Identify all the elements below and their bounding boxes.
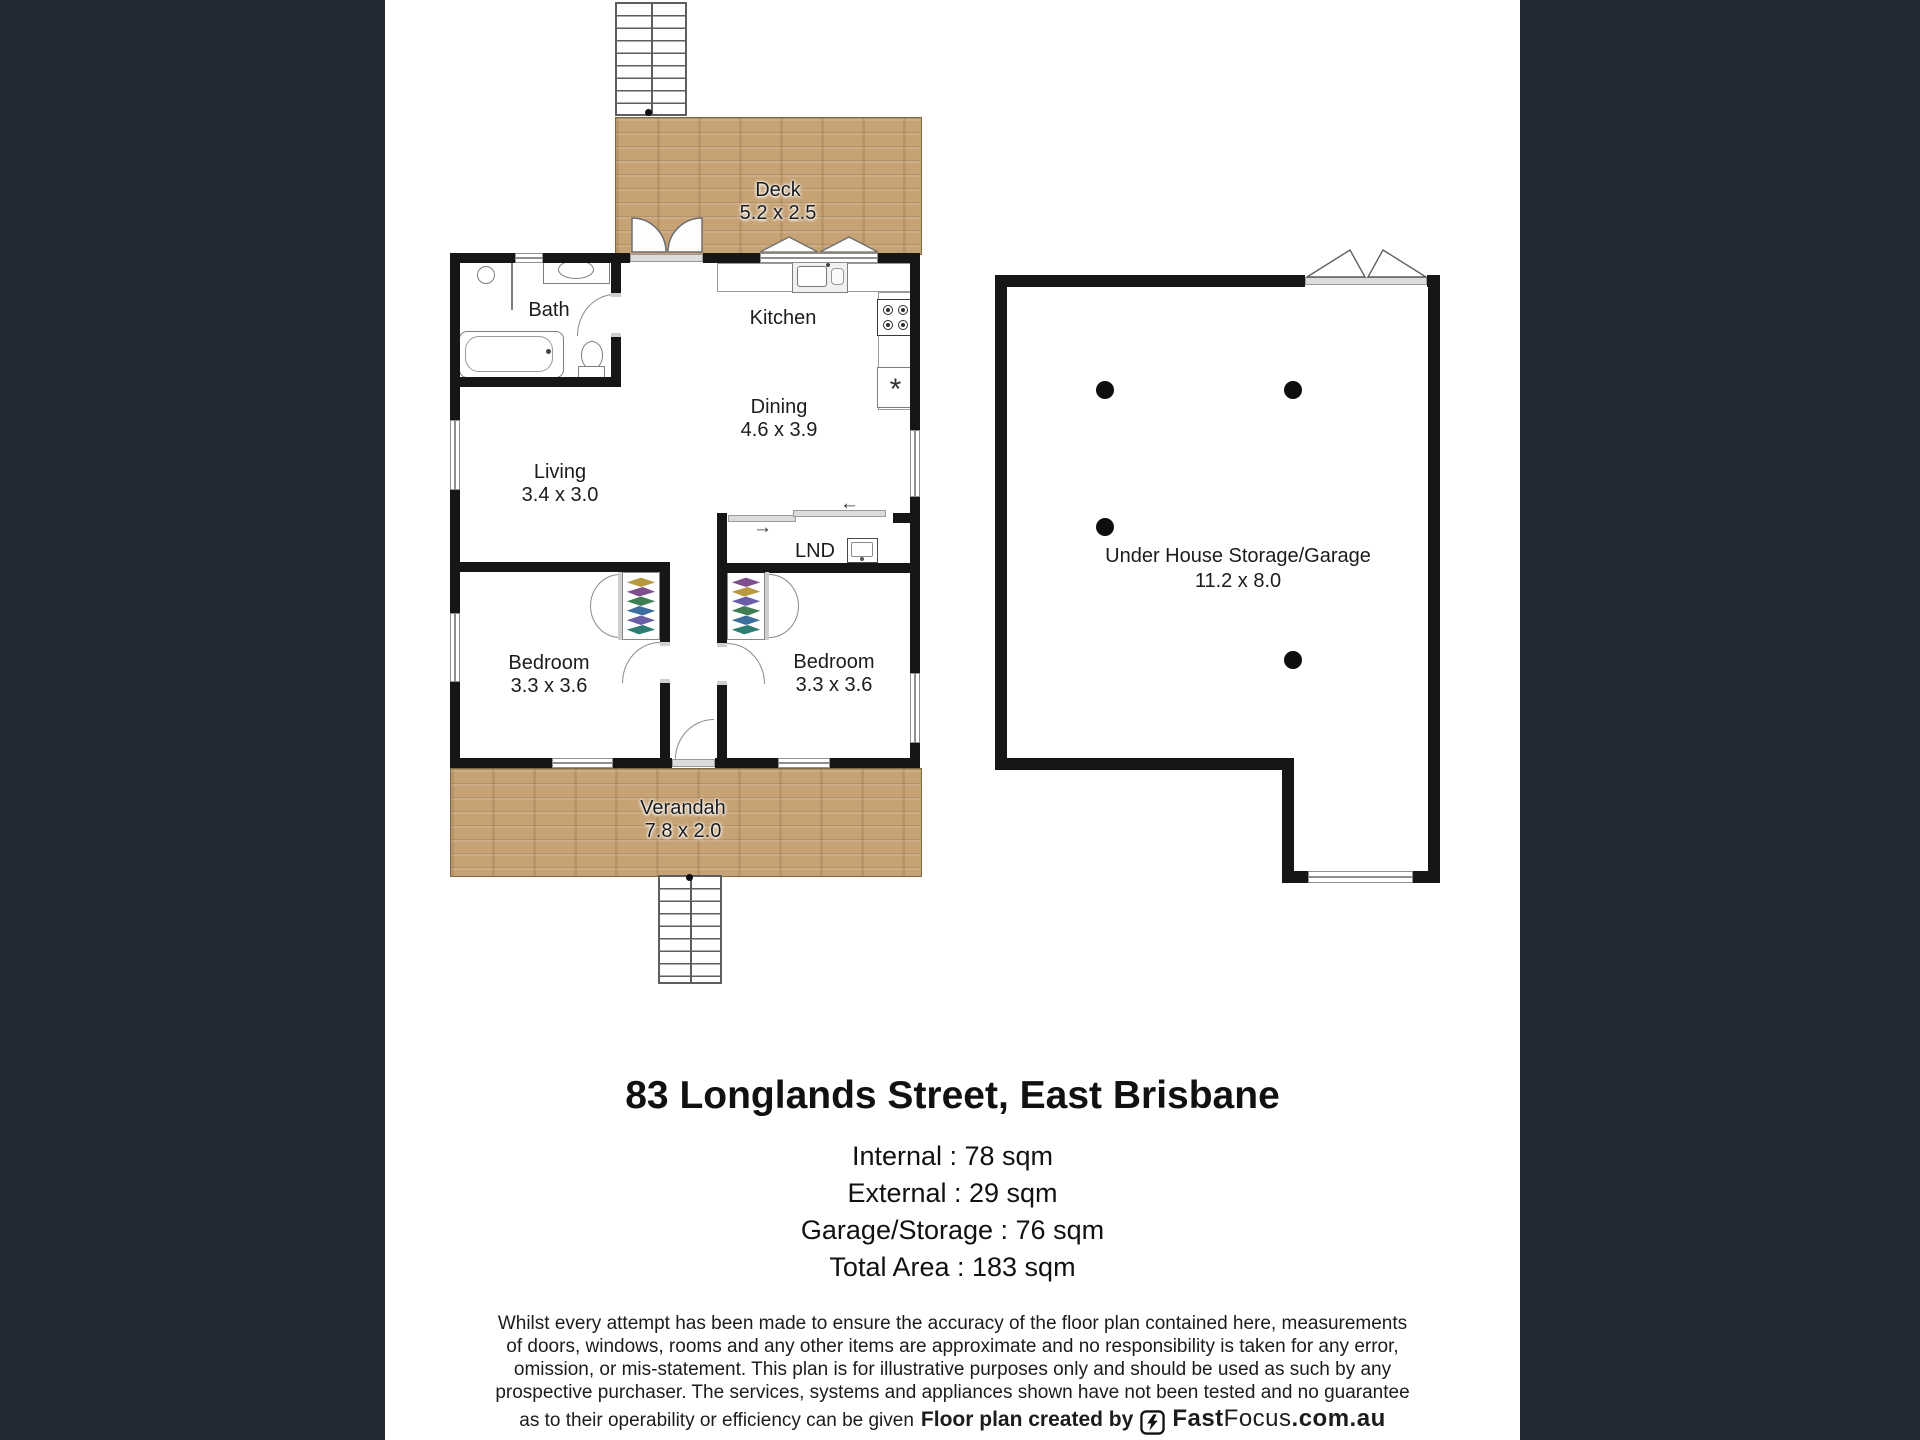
column-dot — [1284, 381, 1302, 399]
window — [910, 430, 920, 497]
door-jamb — [717, 643, 727, 647]
disclaimer-line: omission, or mis-statement. This plan is… — [385, 1358, 1520, 1381]
column-dot — [1096, 381, 1114, 399]
garage-wall-segment — [1294, 871, 1308, 883]
garage-wall-segment — [1413, 871, 1428, 883]
wall-segment — [910, 253, 920, 430]
room-label-bedroom1: Bedroom3.3 x 3.6 — [479, 652, 619, 698]
wall-segment — [910, 497, 920, 673]
area-line: External : 29 sqm — [385, 1175, 1520, 1212]
disclaimer-line: of doors, windows, rooms and any other i… — [385, 1335, 1520, 1358]
wall-segment — [450, 562, 670, 572]
wall-segment — [660, 572, 670, 642]
column-dot — [1284, 651, 1302, 669]
room-label-bedroom2: Bedroom3.3 x 3.6 — [764, 651, 904, 697]
wall-segment — [450, 758, 552, 768]
disclaimer-line: prospective purchaser. The services, sys… — [385, 1381, 1520, 1404]
slide-arrow-right-icon: → — [753, 518, 772, 537]
brand-text: FastFocus.com.au — [1172, 1405, 1385, 1433]
burner-icon — [883, 305, 893, 315]
slide-arrow-left-icon: ← — [840, 494, 859, 513]
area-line: Internal : 78 sqm — [385, 1138, 1520, 1175]
wall-segment — [703, 253, 760, 263]
garage-wall-segment — [995, 275, 1305, 287]
wall-segment — [611, 337, 621, 377]
burner-icon — [883, 320, 893, 330]
window — [910, 673, 920, 743]
wall-segment — [715, 758, 778, 768]
wardrobe-jamb — [618, 572, 622, 640]
kitchen-sink-icon — [792, 262, 848, 293]
wall-segment — [893, 513, 910, 523]
room-label-garage: Under House Storage/Garage11.2 x 8.0 — [1058, 544, 1418, 594]
room-label-dining: Dining4.6 x 3.9 — [709, 396, 849, 442]
area-summary: Internal : 78 sqm External : 29 sqm Gara… — [385, 1138, 1520, 1286]
wardrobe-icon — [727, 572, 765, 640]
page-title: 83 Longlands Street, East Brisbane — [385, 1074, 1520, 1118]
wall-segment — [611, 253, 621, 293]
area-line: Total Area : 183 sqm — [385, 1249, 1520, 1286]
window — [450, 613, 460, 682]
door-sill — [630, 254, 703, 262]
wall-segment — [660, 683, 670, 758]
awning-windows-icon — [759, 236, 879, 253]
wall-segment — [450, 682, 460, 768]
door-jamb — [611, 293, 621, 297]
wall-segment — [450, 253, 460, 420]
garage-wall-segment — [1282, 758, 1294, 883]
stair-post-dot — [645, 109, 652, 116]
room-label-kitchen: Kitchen — [713, 307, 853, 330]
door-sill — [1305, 277, 1427, 285]
disclaimer: Whilst every attempt has been made to en… — [385, 1312, 1520, 1433]
credit-text: Floor plan created by — [921, 1408, 1133, 1432]
window — [778, 758, 830, 768]
door-jamb — [660, 679, 670, 683]
door-jamb — [660, 642, 670, 646]
disclaimer-line: as to their operability or efficiency ca… — [519, 1410, 914, 1432]
door-sill — [672, 759, 715, 767]
wall-segment — [717, 513, 727, 643]
stove-icon — [877, 299, 913, 336]
window — [450, 420, 460, 490]
stair-post-dot — [686, 874, 693, 881]
garage-wall-segment — [995, 275, 1007, 770]
verandah-stairs-icon — [658, 875, 722, 984]
garage-wall-segment — [1428, 275, 1440, 883]
room-label-bath: Bath — [506, 299, 592, 322]
shower-icon — [477, 266, 495, 284]
window — [552, 758, 613, 768]
wall-segment — [613, 758, 672, 768]
room-label-living: Living3.4 x 3.0 — [490, 461, 630, 507]
wardrobe-jamb — [765, 572, 769, 640]
column-dot — [1096, 518, 1114, 536]
burner-icon — [898, 320, 908, 330]
window — [1308, 871, 1413, 883]
wall-segment — [717, 563, 910, 573]
fridge-icon: * — [877, 367, 914, 408]
bathtub-icon — [459, 331, 564, 378]
room-label-laundry: LND — [780, 540, 850, 563]
deck-stairs-icon — [615, 2, 687, 116]
room-label-deck: Deck5.2 x 2.5 — [693, 179, 863, 225]
fastfocus-logo-icon — [1140, 1410, 1165, 1435]
door-jamb — [611, 333, 621, 337]
credit-line: as to their operability or efficiency ca… — [385, 1405, 1520, 1433]
toilet-icon — [581, 341, 603, 369]
garage-wall-segment — [995, 758, 1294, 770]
window — [515, 253, 543, 263]
disclaimer-line: Whilst every attempt has been made to en… — [385, 1312, 1520, 1335]
garage-doors-icon — [1306, 248, 1427, 278]
wardrobe-icon — [622, 572, 660, 640]
area-line: Garage/Storage : 76 sqm — [385, 1212, 1520, 1249]
window — [760, 253, 878, 263]
wall-segment — [450, 490, 460, 613]
wall-segment — [830, 758, 920, 768]
wall-segment — [450, 377, 621, 387]
floor-plan-page: * ← → — [0, 0, 1920, 1440]
room-label-verandah: Verandah7.8 x 2.0 — [603, 797, 763, 843]
door-jamb — [717, 681, 727, 685]
washing-machine-icon — [847, 538, 878, 563]
wall-segment — [717, 685, 727, 758]
burner-icon — [898, 305, 908, 315]
